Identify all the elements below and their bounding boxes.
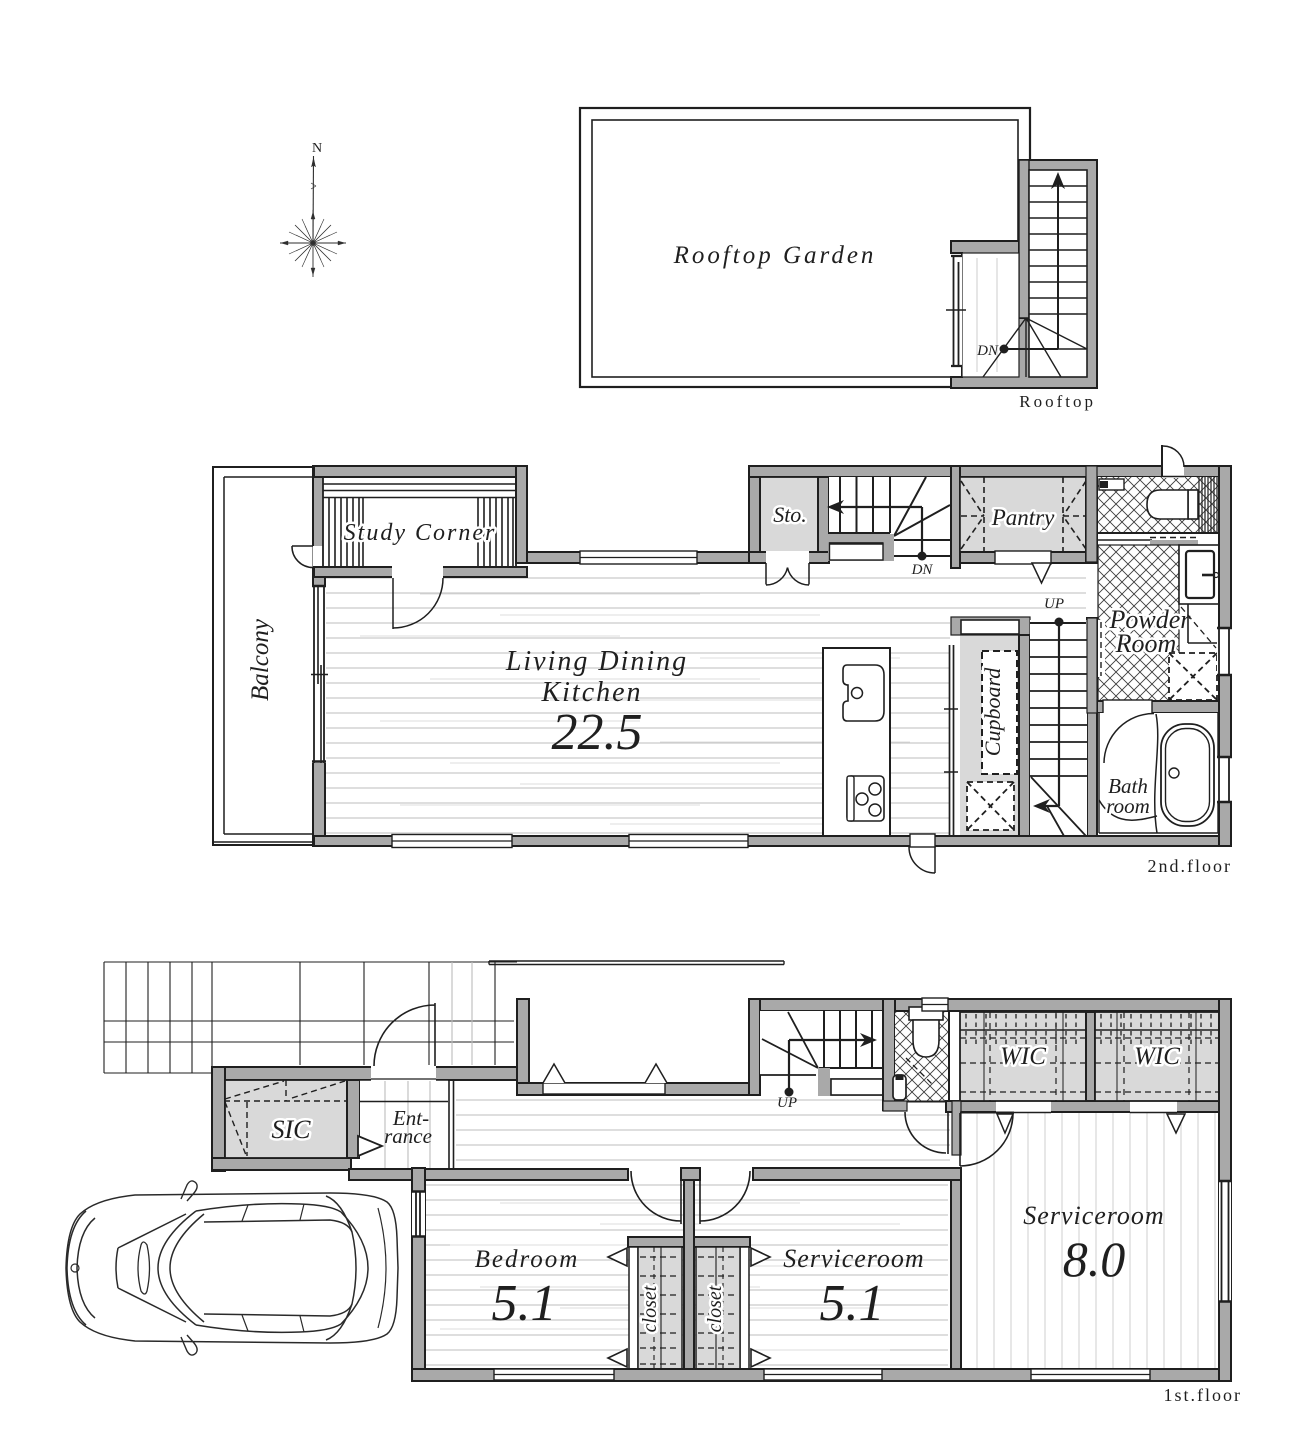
svg-text:Serviceroom: Serviceroom	[783, 1244, 924, 1273]
svg-text:1st.floor: 1st.floor	[1164, 1385, 1243, 1405]
svg-text:N: N	[312, 141, 322, 156]
svg-text:closet: closet	[639, 1285, 661, 1332]
svg-text:WIC: WIC	[1134, 1043, 1180, 1070]
svg-text:Bedroom: Bedroom	[475, 1246, 580, 1273]
svg-text:SIC: SIC	[272, 1115, 312, 1144]
svg-text:22.5: 22.5	[552, 704, 643, 761]
svg-text:Sto.: Sto.	[773, 502, 807, 527]
svg-text:Balcony: Balcony	[247, 618, 274, 701]
svg-text:Living Dining: Living Dining	[505, 646, 688, 677]
svg-text:8.0: 8.0	[1063, 1231, 1126, 1287]
svg-text:WIC: WIC	[1000, 1043, 1046, 1070]
svg-text:Rooftop: Rooftop	[1019, 392, 1096, 411]
svg-text:closet: closet	[704, 1285, 726, 1332]
svg-text:Rooftop Garden: Rooftop Garden	[673, 242, 877, 269]
svg-text:UP: UP	[1044, 596, 1064, 612]
svg-text:Serviceroom: Serviceroom	[1023, 1201, 1164, 1230]
svg-text:UP: UP	[777, 1095, 797, 1111]
svg-text:Pantry: Pantry	[991, 505, 1055, 530]
svg-text:room: room	[1106, 794, 1150, 818]
svg-text:Cupboard: Cupboard	[980, 667, 1005, 756]
svg-text:DN: DN	[976, 343, 999, 359]
svg-text:rance: rance	[384, 1124, 432, 1148]
svg-text:2nd.floor: 2nd.floor	[1148, 856, 1233, 876]
svg-text:5.1: 5.1	[492, 1275, 557, 1332]
svg-text:5.1: 5.1	[820, 1275, 885, 1332]
svg-text:DN: DN	[911, 562, 934, 578]
svg-text:Room: Room	[1115, 629, 1177, 658]
svg-text:Study Corner: Study Corner	[344, 520, 497, 546]
